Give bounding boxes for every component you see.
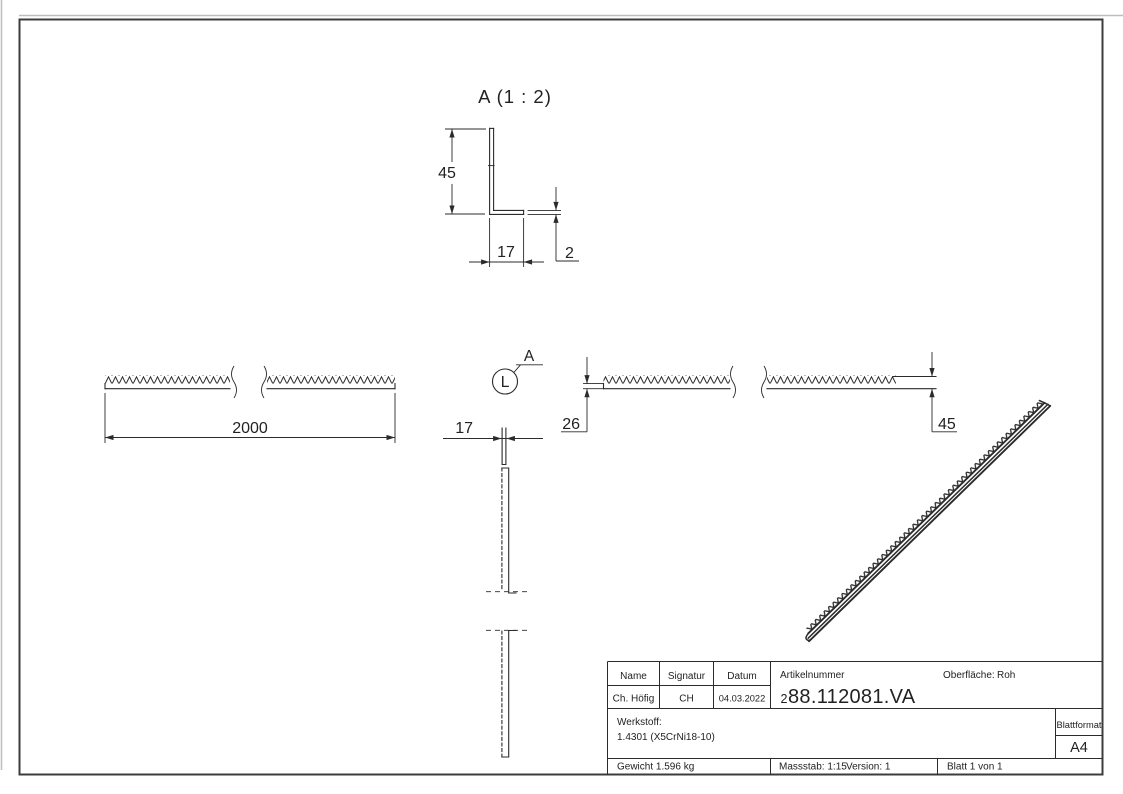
- dimension-value: 26: [562, 416, 580, 433]
- author-signature: CH: [679, 694, 693, 705]
- arrowhead-down: [929, 368, 934, 377]
- scale-value: Massstab: 1:15: [779, 762, 847, 773]
- creation-date: 04.03.2022: [719, 694, 766, 704]
- engineering-drawing-sheet: A (1 : 2) 45 17: [0, 0, 1123, 794]
- arrowhead-up: [584, 389, 589, 398]
- format-label: Blattformat: [1057, 720, 1102, 730]
- serrated-edge-left-segment: [604, 376, 731, 384]
- serrated-edge-left-segment: [105, 376, 230, 384]
- arrowhead-right: [387, 435, 396, 440]
- arrowhead-down: [584, 375, 589, 384]
- format-value: A4: [1070, 740, 1088, 756]
- front-view: 2000: [105, 366, 395, 443]
- arrowhead-up: [553, 214, 558, 223]
- dimension-45: 45: [929, 352, 957, 433]
- l-profile-outline: [488, 128, 524, 214]
- title-block: Name Signatur Datum Ch. Höfig CH 04.03.2…: [608, 662, 1103, 775]
- material-label: Werkstoff:: [617, 717, 662, 728]
- serrated-edge-right-segment: [267, 376, 395, 384]
- bar-visible-edge-upper: [502, 468, 516, 593]
- arrowhead-left: [524, 259, 533, 264]
- bar-end-caps: [105, 384, 395, 389]
- dimension-value: 45: [438, 165, 456, 182]
- right-view: 26 45: [561, 352, 957, 433]
- break-line-right: [262, 366, 267, 398]
- top-edge-line: [808, 403, 1044, 633]
- callout-leader-line: [514, 365, 543, 373]
- arrowhead-left: [506, 436, 515, 441]
- break-line-left: [731, 366, 736, 398]
- arrowhead-left: [105, 435, 114, 440]
- break-line-right: [762, 366, 767, 398]
- arrowhead-right: [481, 259, 490, 264]
- serrated-edge-right-segment: [767, 376, 896, 384]
- bar-tip-outline: [502, 428, 506, 465]
- dimension-2-detail: 2: [528, 187, 579, 262]
- callout-circle-label: L: [501, 374, 510, 391]
- drawing-canvas: A (1 : 2) 45 17: [0, 0, 1123, 794]
- name-header: Name: [620, 671, 647, 682]
- date-header: Datum: [727, 671, 756, 682]
- article-number-label: Artikelnummer: [780, 670, 845, 681]
- dimension-17-detail: 17: [469, 218, 544, 267]
- material-value: 1.4301 (X5CrNi18-10): [617, 732, 715, 743]
- signature-header: Signatur: [668, 671, 706, 682]
- extension-lines: [528, 210, 561, 214]
- detail-view-title: A (1 : 2): [478, 86, 552, 107]
- arrowhead-down: [449, 206, 454, 215]
- dimension-26: 26: [561, 357, 604, 433]
- arrowhead-right: [493, 436, 502, 441]
- dimension-value: 2: [565, 245, 574, 262]
- dimension-value: 17: [497, 244, 515, 261]
- detail-callout: L A: [493, 348, 544, 394]
- dimension-17: 17: [443, 420, 543, 441]
- bottom-edge-line: [809, 406, 1050, 641]
- dimension-value: 45: [938, 416, 956, 433]
- sheet-count: Blatt 1 von 1: [947, 762, 1003, 773]
- detail-view-a: A (1 : 2) 45 17: [438, 86, 579, 267]
- arrowhead-down: [553, 202, 558, 211]
- arrowhead-up: [929, 389, 934, 398]
- author-name: Ch. Höfig: [613, 694, 655, 705]
- article-number: 88.112081.VA: [788, 686, 916, 708]
- bar-visible-edge-lower: [502, 631, 516, 758]
- isometric-view: [801, 398, 1051, 642]
- mid-edge-line: [808, 404, 1048, 638]
- callout-detail-label: A: [524, 348, 535, 365]
- surface-label: Oberfläche:: [943, 670, 995, 681]
- dimension-2000: 2000: [105, 393, 395, 443]
- dimension-value: 2000: [232, 420, 268, 437]
- version-value: Version: 1: [846, 762, 891, 773]
- arrowhead-up: [449, 129, 454, 138]
- dimension-value: 17: [455, 420, 473, 437]
- article-number-prefix: 2: [781, 692, 788, 706]
- weight-value: Gewicht 1.596 kg: [617, 762, 694, 773]
- break-line-left: [232, 366, 237, 398]
- dimension-45-detail: 45: [438, 129, 486, 214]
- surface-value: Roh: [997, 670, 1015, 681]
- top-view: 17: [443, 420, 543, 757]
- serrated-edge: [806, 401, 1043, 632]
- extension-lines: [583, 384, 604, 389]
